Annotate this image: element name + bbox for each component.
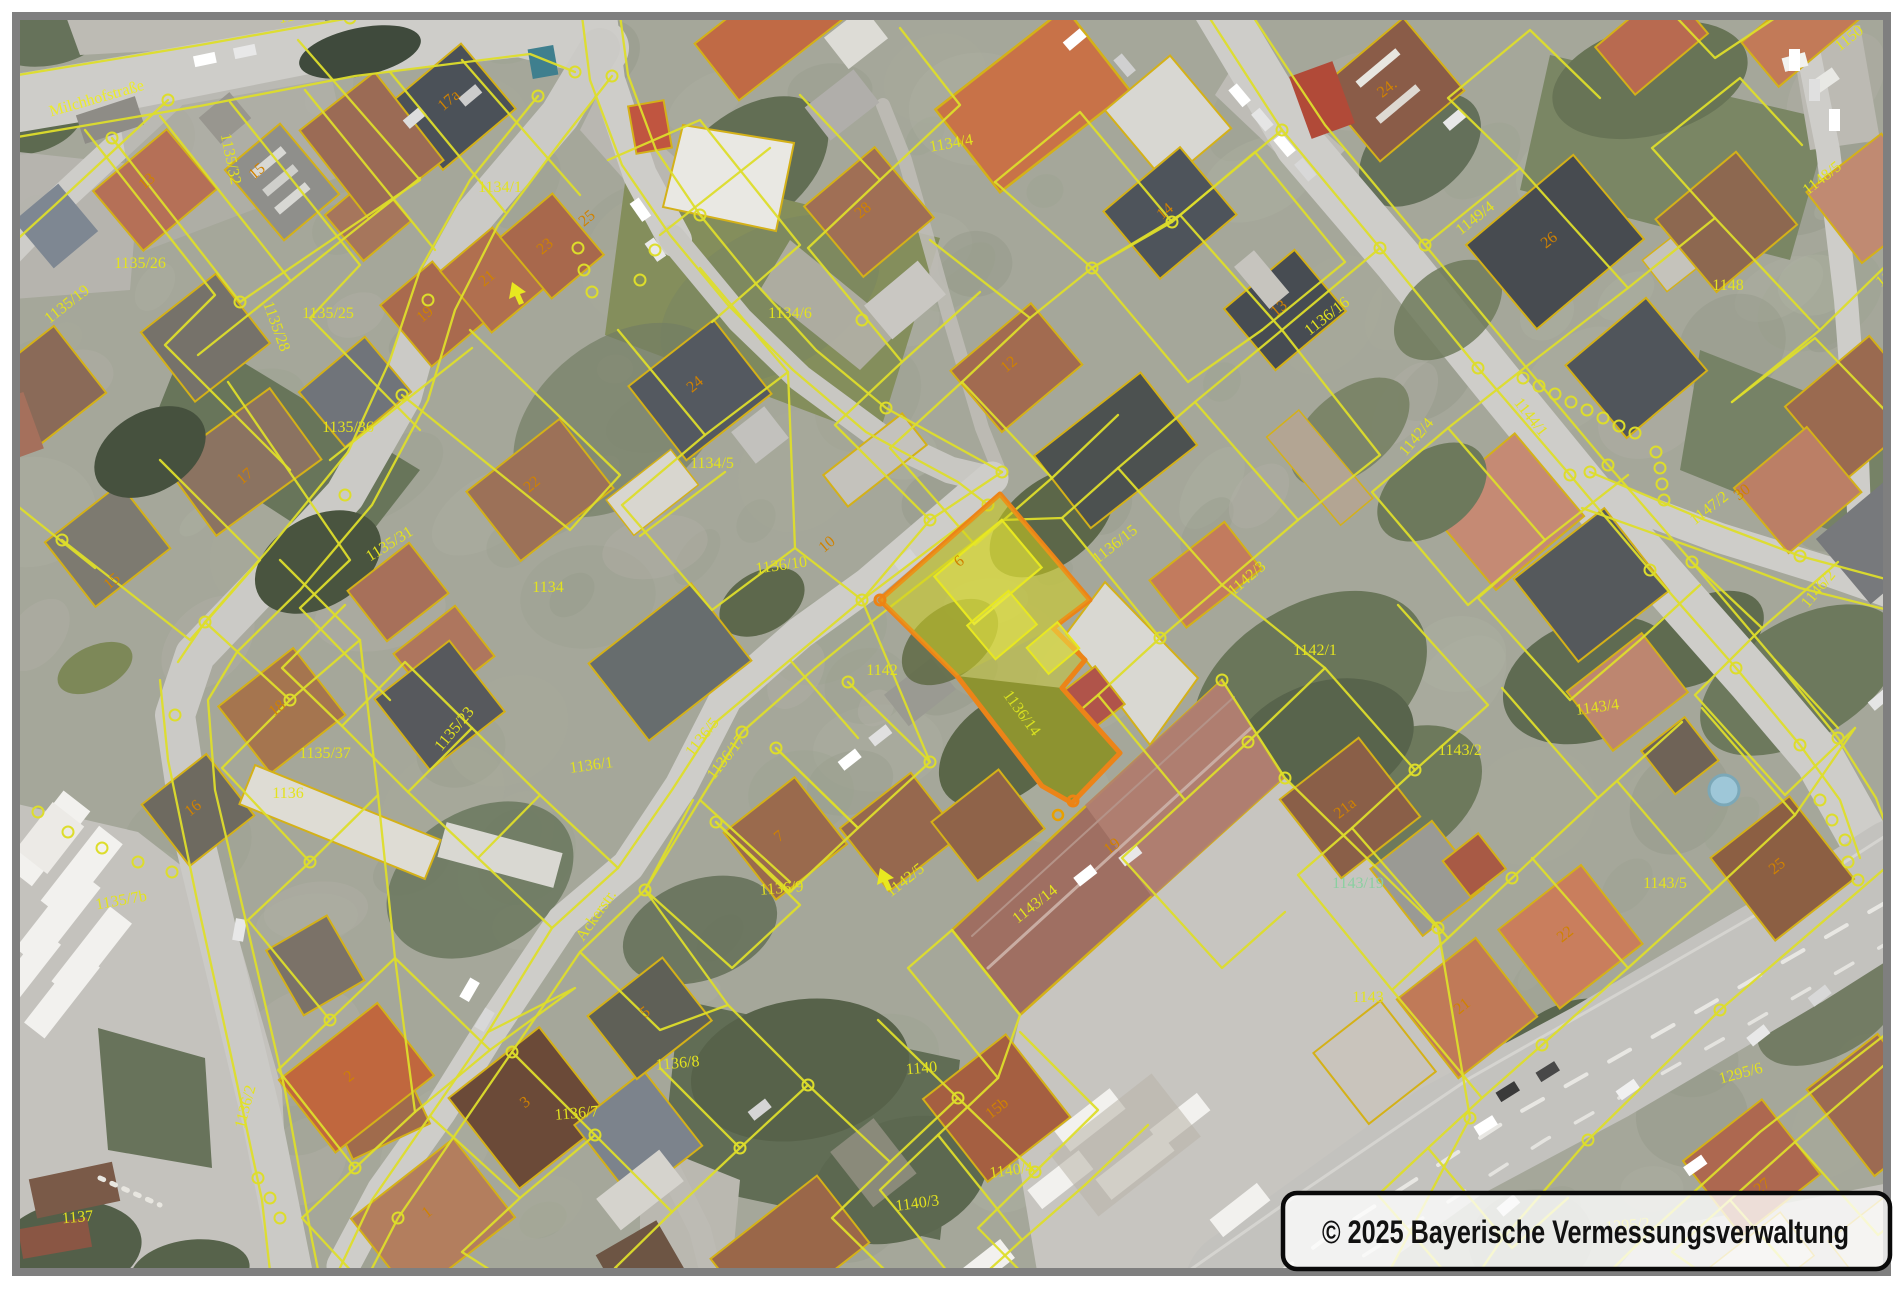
svg-text:1142/1: 1142/1	[1293, 642, 1337, 659]
svg-text:1148: 1148	[1712, 277, 1743, 294]
svg-text:1135/36: 1135/36	[322, 419, 374, 436]
svg-text:1143/19: 1143/19	[1332, 875, 1384, 892]
svg-text:1135/37: 1135/37	[299, 745, 351, 762]
svg-text:1135/26: 1135/26	[114, 255, 166, 272]
svg-text:1137: 1137	[61, 1208, 94, 1228]
svg-text:1142: 1142	[866, 662, 897, 679]
svg-text:1134/6: 1134/6	[768, 305, 812, 322]
svg-text:1135/25: 1135/25	[302, 305, 354, 322]
svg-text:1143: 1143	[1352, 989, 1383, 1006]
svg-text:1134/5: 1134/5	[690, 455, 734, 472]
svg-text:© 2025 Bayerische Vermessungsv: © 2025 Bayerische Vermessungsverwaltung	[1322, 1214, 1849, 1250]
svg-text:1136: 1136	[272, 785, 303, 802]
svg-text:1143/5: 1143/5	[1643, 875, 1687, 892]
svg-text:1143/2: 1143/2	[1438, 742, 1482, 759]
svg-text:1134/1: 1134/1	[478, 179, 522, 196]
svg-text:1134: 1134	[532, 579, 563, 596]
svg-text:1140: 1140	[905, 1059, 938, 1079]
